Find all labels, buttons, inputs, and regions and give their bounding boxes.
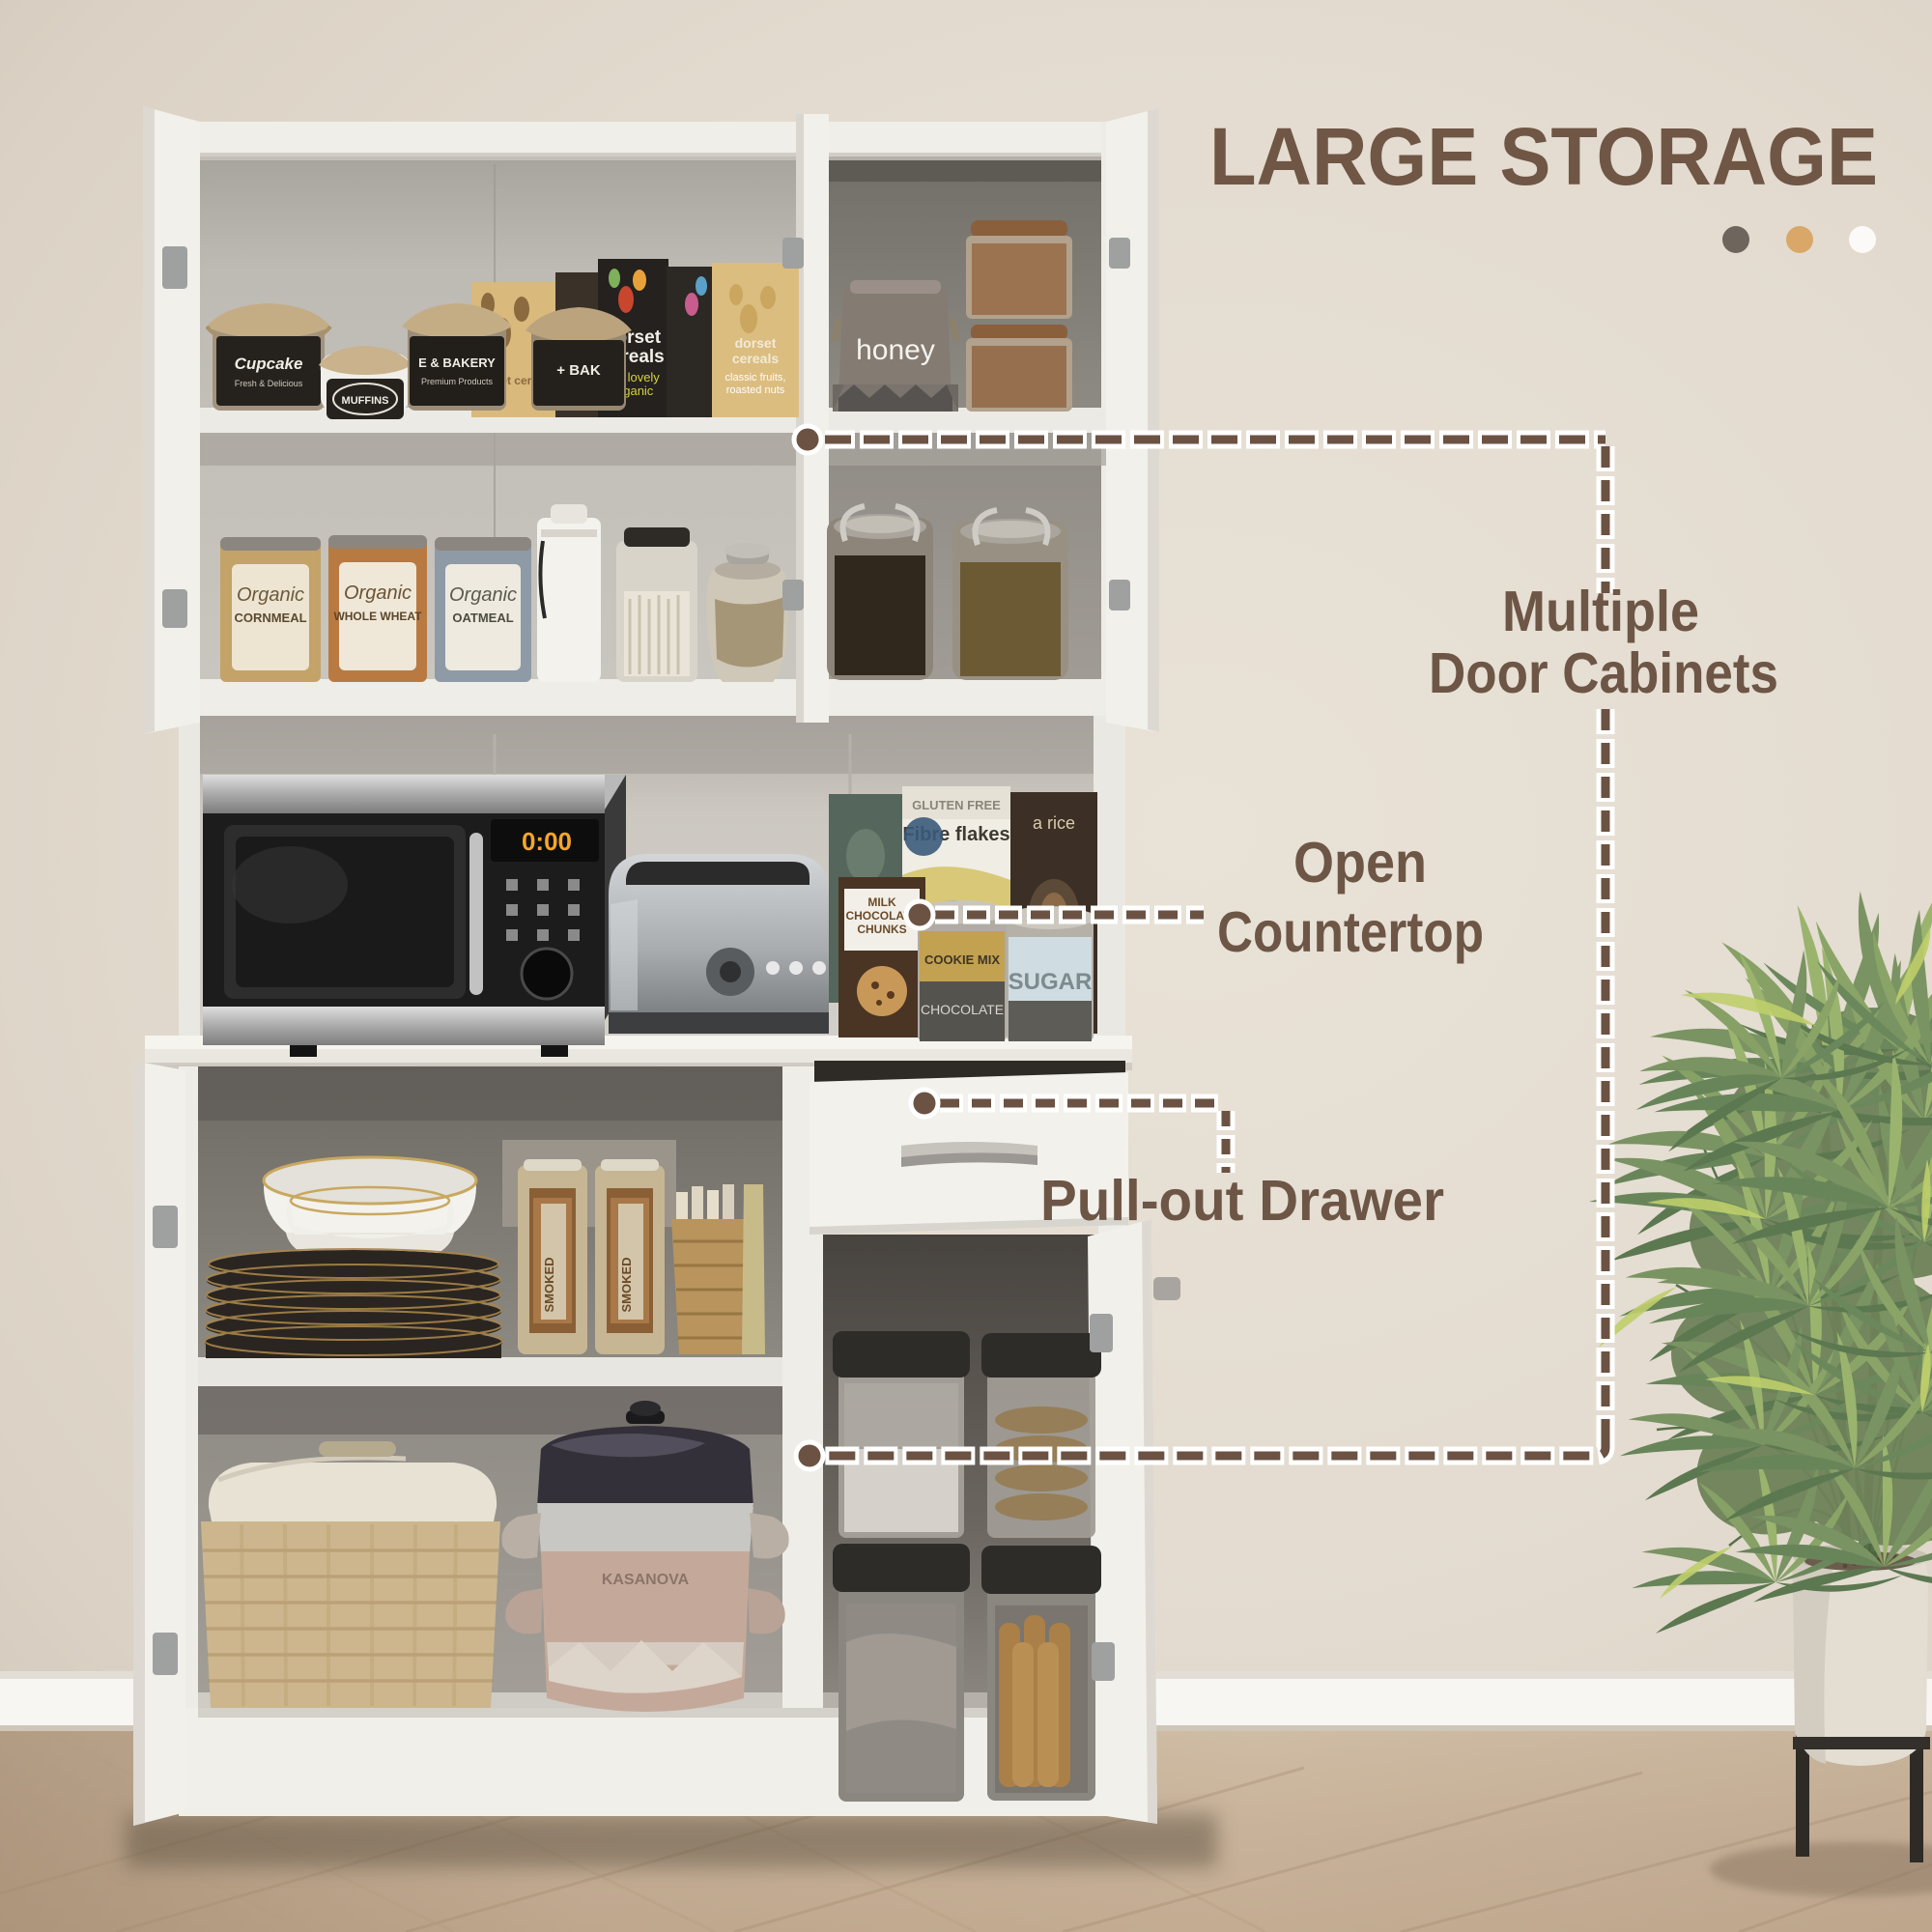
svg-text:Fresh & Delicious: Fresh & Delicious bbox=[235, 379, 303, 388]
svg-text:OATMEAL: OATMEAL bbox=[452, 611, 513, 625]
svg-text:COOKIE MIX: COOKIE MIX bbox=[924, 952, 1000, 967]
svg-text:Cupcake: Cupcake bbox=[235, 355, 303, 373]
svg-text:KASANOVA: KASANOVA bbox=[602, 1572, 690, 1588]
svg-text:Pull-out Drawer: Pull-out Drawer bbox=[1040, 1169, 1444, 1233]
svg-text:CHUNKS: CHUNKS bbox=[857, 923, 906, 936]
svg-text:Premium Products: Premium Products bbox=[421, 377, 494, 386]
svg-text:Multiple: Multiple bbox=[1502, 580, 1699, 643]
svg-text:LARGE STORAGE: LARGE STORAGE bbox=[1209, 111, 1878, 202]
svg-text:CHOCOLATE: CHOCOLATE bbox=[921, 1002, 1004, 1017]
svg-text:E & BAKERY: E & BAKERY bbox=[418, 355, 496, 370]
svg-text:honey: honey bbox=[856, 334, 935, 366]
svg-text:Open: Open bbox=[1293, 831, 1427, 895]
svg-text:SMOKED: SMOKED bbox=[619, 1257, 634, 1312]
svg-text:classic fruits,: classic fruits, bbox=[725, 372, 786, 384]
svg-text:Organic: Organic bbox=[449, 584, 517, 606]
svg-text:Organic: Organic bbox=[237, 584, 304, 606]
svg-text:MUFFINS: MUFFINS bbox=[342, 395, 389, 407]
svg-text:0:00: 0:00 bbox=[522, 827, 572, 856]
svg-text:dorset: dorset bbox=[735, 335, 777, 351]
svg-text:Organic: Organic bbox=[344, 582, 412, 604]
svg-text:cereals: cereals bbox=[732, 351, 779, 366]
svg-text:CORNMEAL: CORNMEAL bbox=[234, 611, 306, 625]
svg-text:SMOKED: SMOKED bbox=[542, 1257, 556, 1312]
svg-text:SUGAR: SUGAR bbox=[1009, 969, 1093, 995]
svg-text:GLUTEN FREE: GLUTEN FREE bbox=[912, 798, 1001, 812]
svg-text:MILK: MILK bbox=[867, 895, 896, 909]
svg-text:Countertop: Countertop bbox=[1217, 900, 1484, 964]
svg-text:roasted nuts: roasted nuts bbox=[726, 384, 785, 396]
svg-text:WHOLE WHEAT: WHOLE WHEAT bbox=[333, 610, 422, 623]
svg-text:Door Cabinets: Door Cabinets bbox=[1429, 641, 1778, 705]
svg-text:a rice: a rice bbox=[1033, 813, 1075, 833]
svg-text:+ BAK: + BAK bbox=[556, 362, 601, 379]
